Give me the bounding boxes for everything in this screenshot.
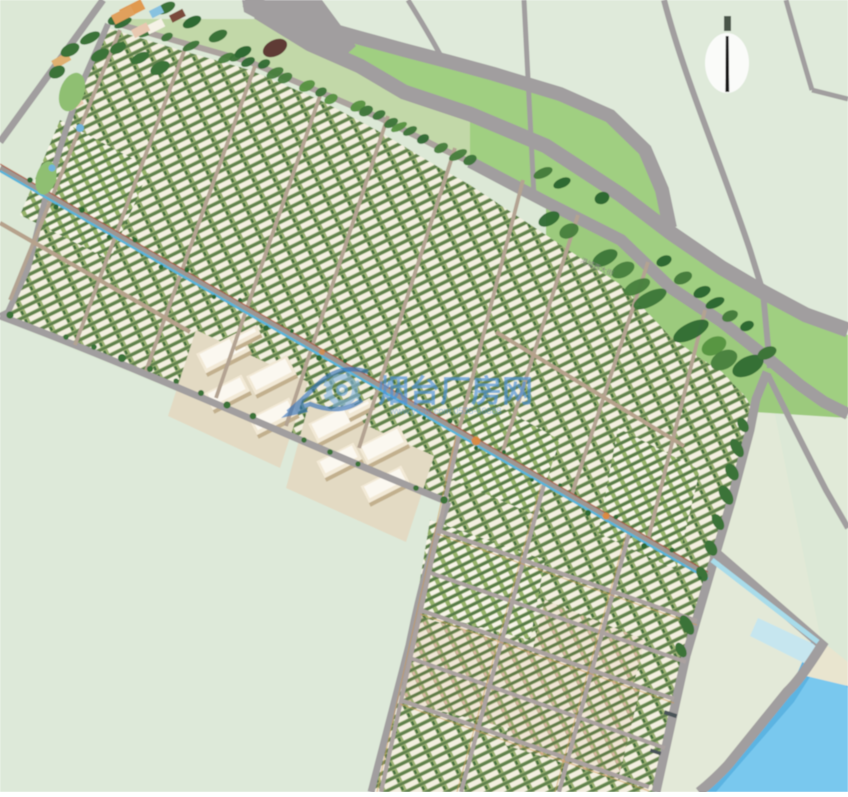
svg-text:www.ytcfw.com 0535-66888: www.ytcfw.com 0535-66888 [389, 406, 502, 416]
svg-text:烟台厂房网: 烟台厂房网 [378, 374, 533, 409]
